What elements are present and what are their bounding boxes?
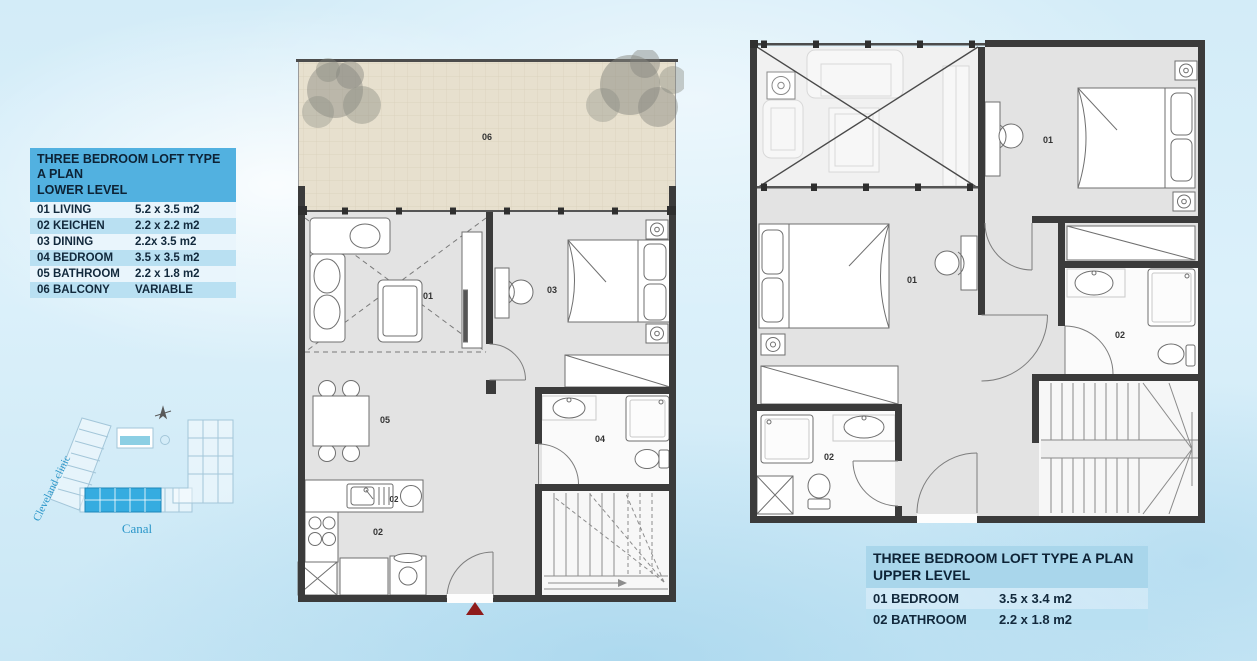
room-size: 3.5 x 3.5 m2: [135, 252, 200, 264]
entry-threshold: [447, 594, 493, 603]
bedroom-left-label: 01: [907, 275, 917, 285]
room-name: 02 KEICHEN: [37, 220, 135, 232]
legend-row-bedroom: 01 BEDROOM 3.5 x 3.4 m2: [866, 588, 1148, 609]
bathroom-right-label: 02: [1115, 330, 1125, 340]
room-size: 3.5 x 3.4 m2: [999, 591, 1072, 606]
legend-row-bathroom: 05 BATHROOM 2.2 x 1.8 m2: [30, 266, 236, 282]
room-name: 04 BEDROOM: [37, 252, 135, 264]
site-map: Cleveland clinic Canal: [25, 398, 237, 540]
room-size: 5.2 x 3.5 m2: [135, 204, 200, 216]
living-label: 01: [423, 291, 433, 301]
legend-row-living: 01 LIVING 5.2 x 3.5 m2: [30, 202, 236, 218]
upper-level-floor-plan: 01 01 02 02: [745, 36, 1210, 528]
legend-row-balcony: 06 BALCONY VARIABLE: [30, 282, 236, 298]
legend-upper-level: THREE BEDROOM LOFT TYPE A PLAN UPPER LEV…: [866, 546, 1148, 630]
legend-upper-header: THREE BEDROOM LOFT TYPE A PLAN UPPER LEV…: [866, 546, 1148, 588]
highlighted-units: [85, 488, 161, 512]
wardrobe: [1067, 226, 1195, 260]
legend-row-bathroom: 02 BATHROOM 2.2 x 1.8 m2: [866, 609, 1148, 630]
upper-threshold: [917, 514, 977, 523]
legend-row-bedroom: 04 BEDROOM 3.5 x 3.5 m2: [30, 250, 236, 266]
legend-row-dining: 03 DINING 2.2x 3.5 m2: [30, 234, 236, 250]
terrace-rail: [750, 40, 985, 48]
bedroom-right-label: 01: [1043, 135, 1053, 145]
room-name: 02 BATHROOM: [873, 612, 999, 627]
room-name: 05 BATHROOM: [37, 268, 135, 280]
room-name: 01 LIVING: [37, 204, 135, 216]
room-name: 06 BALCONY: [37, 284, 135, 296]
kitchen-label: 02: [373, 527, 383, 537]
compass-icon: [155, 407, 171, 418]
legend-upper-title-line2: UPPER LEVEL: [873, 567, 1141, 584]
bedroom-label: 03: [547, 285, 557, 295]
room-size: 2.2 x 1.8 m2: [135, 268, 200, 280]
dining-label: 05: [380, 415, 390, 425]
bathroom-label: 04: [595, 434, 605, 444]
legend-lower-level: THREE BEDROOM LOFT TYPE A PLAN LOWER LEV…: [30, 148, 236, 298]
room-size: 2.2 x 2.2 m2: [135, 220, 200, 232]
lower-level-floor-plan: 06 01 03 04 05 02 02: [290, 50, 684, 622]
room-name: 03 DINING: [37, 236, 135, 248]
balcony-label: 06: [482, 132, 492, 142]
site-map-bottom-label: Canal: [122, 521, 153, 536]
entry-arrow: [466, 602, 484, 615]
legend-upper-title-line1: THREE BEDROOM LOFT TYPE A PLAN: [873, 550, 1141, 567]
room-size: VARIABLE: [135, 284, 193, 296]
room-size: 2.2 x 1.8 m2: [999, 612, 1072, 627]
bathroom-left-label: 02: [824, 452, 834, 462]
legend-lower-header: THREE BEDROOM LOFT TYPE A PLAN LOWER LEV…: [30, 148, 236, 202]
legend-lower-title-line1: THREE BEDROOM LOFT TYPE A PLAN: [37, 152, 229, 183]
legend-row-kitchen: 02 KEICHEN 2.2 x 2.2 m2: [30, 218, 236, 234]
legend-lower-title-line2: LOWER LEVEL: [37, 183, 229, 198]
room-size: 2.2x 3.5 m2: [135, 236, 196, 248]
brochure-page: THREE BEDROOM LOFT TYPE A PLAN LOWER LEV…: [0, 0, 1257, 661]
kitchen-counter-label: 02: [390, 495, 399, 504]
room-name: 01 BEDROOM: [873, 591, 999, 606]
pool: [117, 428, 170, 448]
